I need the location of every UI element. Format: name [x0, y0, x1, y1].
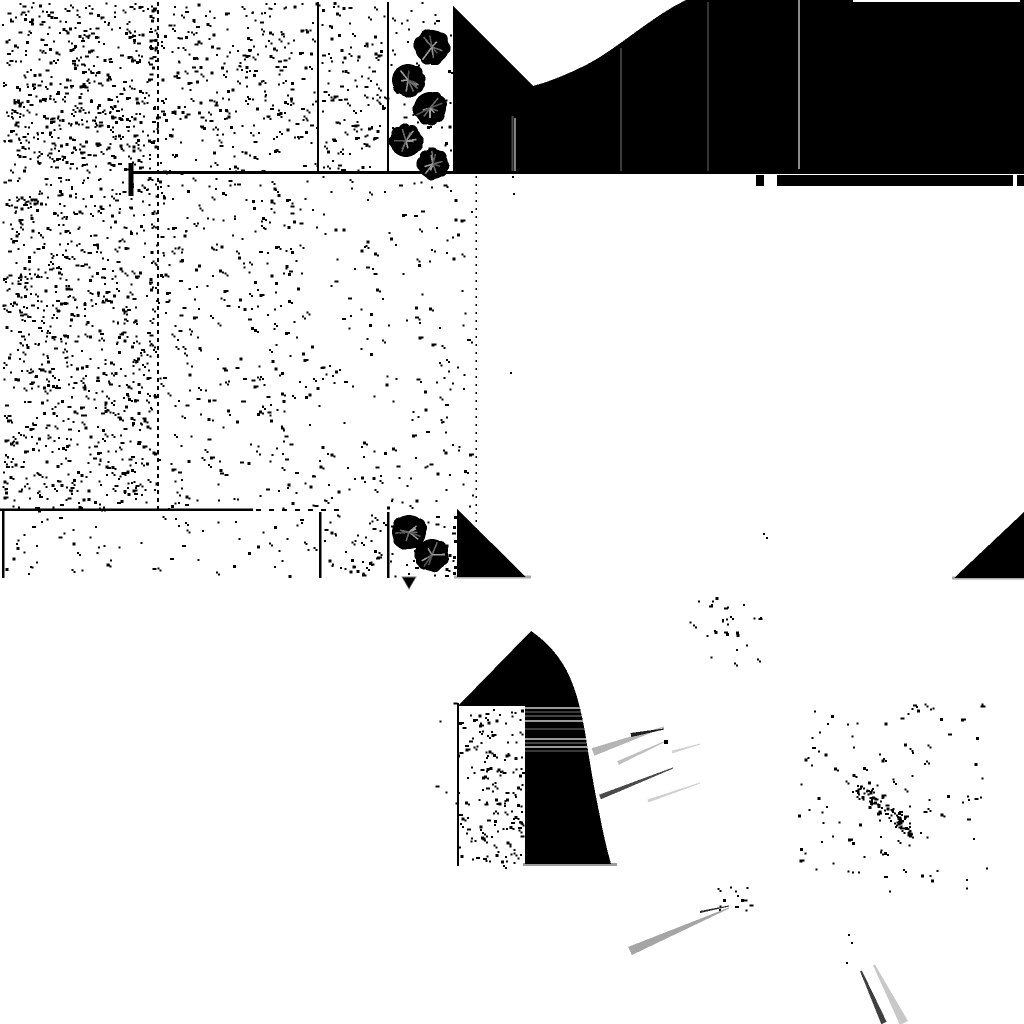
- scene-canvas: [0, 0, 1024, 1024]
- light-streaks: [592, 727, 908, 1024]
- tree-canopy: [412, 92, 446, 126]
- arch-silhouette: [458, 631, 611, 864]
- dark-mass-top-right: [130, 0, 1024, 186]
- tree-canopy: [388, 123, 423, 157]
- tree-canopy: [417, 148, 450, 181]
- tree-canopy-row: [388, 29, 450, 572]
- tree-canopy: [392, 64, 426, 98]
- down-arrow-mark: [402, 577, 416, 589]
- tree-canopy: [413, 29, 450, 65]
- binarized-scene: [0, 0, 1024, 1024]
- shadow-triangles: [457, 509, 1024, 578]
